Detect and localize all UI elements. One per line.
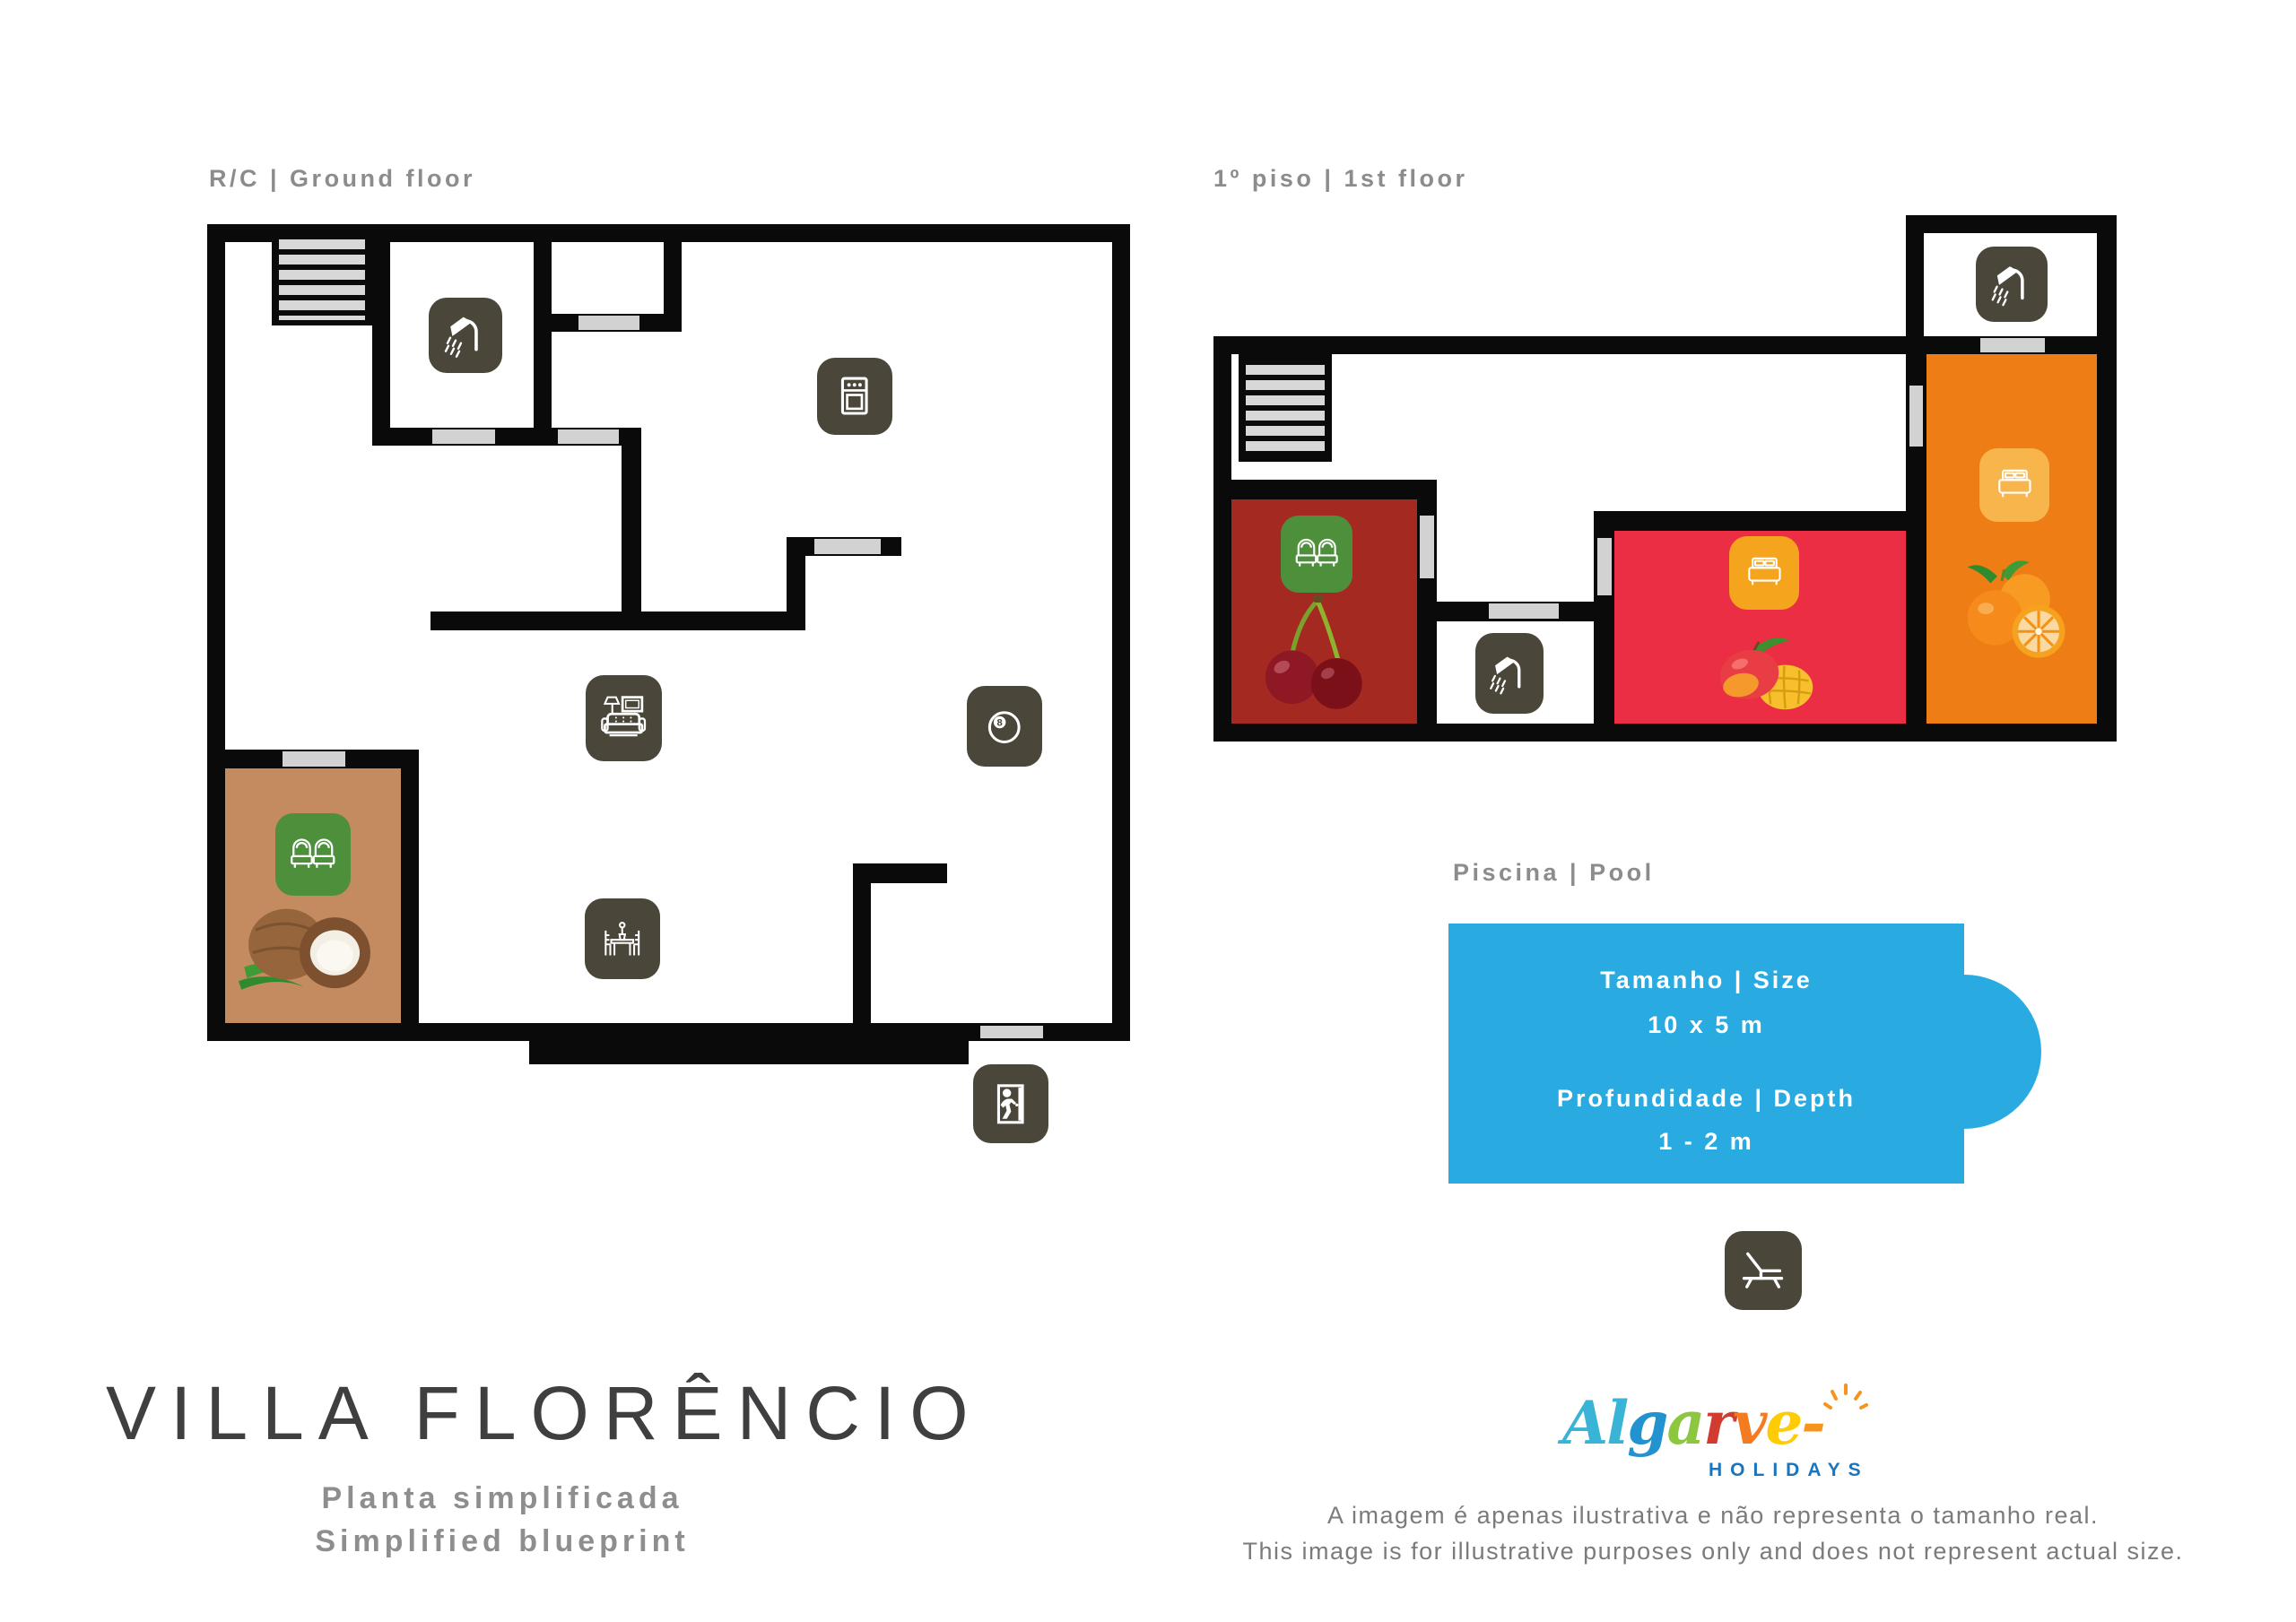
sun-icon <box>1823 1381 1868 1417</box>
first-floor-label: 1º piso | 1st floor <box>1213 165 1467 193</box>
door-opening <box>980 1026 1043 1038</box>
wall <box>207 224 225 1041</box>
wall <box>1213 724 2117 742</box>
cherries-image <box>1254 585 1381 714</box>
wall <box>372 224 390 446</box>
logo-letter: g <box>1627 1388 1666 1458</box>
wall <box>401 750 419 1041</box>
wall <box>1906 215 2117 233</box>
wall <box>853 863 947 883</box>
pool-size-label: Tamanho | Size <box>1448 967 1964 994</box>
wall <box>2097 215 2117 742</box>
stairs-treads <box>279 239 365 320</box>
pool-depth-label: Profundidade | Depth <box>1448 1085 1964 1113</box>
mango-image <box>1711 619 1817 716</box>
shower-icon <box>1475 633 1544 714</box>
double-bed-icon <box>1979 448 2049 522</box>
logo-letter: - <box>1801 1388 1823 1458</box>
wall <box>1213 480 1437 499</box>
oranges-image <box>1961 552 2075 664</box>
door-opening <box>283 751 345 767</box>
logo-letter: v <box>1733 1388 1765 1458</box>
stairs <box>272 224 372 325</box>
room-orange-bedroom <box>1926 354 2097 724</box>
stairs <box>1239 354 1332 462</box>
wall <box>1213 336 1231 742</box>
logo-letter: A <box>1562 1388 1606 1458</box>
pool-label: Piscina | Pool <box>1453 859 1655 887</box>
wall <box>622 428 641 630</box>
exit-icon <box>973 1064 1048 1143</box>
ground-floor-label: R/C | Ground floor <box>209 165 475 193</box>
door-opening <box>1909 386 1923 447</box>
logo-letter: l <box>1606 1388 1627 1458</box>
wall <box>534 224 552 446</box>
twin-beds-icon <box>1281 516 1352 593</box>
wall <box>1594 511 1924 531</box>
door-opening <box>1980 338 2045 352</box>
logo-letter: a <box>1666 1388 1703 1458</box>
dining-table-icon <box>585 898 660 979</box>
door-opening <box>814 539 881 554</box>
logo-letter: e <box>1765 1388 1801 1458</box>
pool-depth-value: 1 - 2 m <box>1448 1128 1964 1156</box>
sofa-tv-icon <box>586 675 662 761</box>
wall <box>1112 224 1130 1041</box>
shower-icon <box>429 298 502 373</box>
page-title: VILLA FLORÊNCIO <box>106 1370 983 1457</box>
door-opening <box>1597 538 1612 595</box>
coconut-image <box>239 884 380 999</box>
door-opening <box>1489 603 1559 619</box>
wall <box>529 1041 969 1064</box>
wall <box>430 612 805 630</box>
subtitle-pt: Planta simplificada <box>135 1481 870 1516</box>
door-opening <box>558 429 619 444</box>
subtitle-en: Simplified blueprint <box>135 1524 870 1559</box>
blueprint-page: 8 <box>0 0 2296 1622</box>
disclaimer-en: This image is for illustrative purposes … <box>1166 1538 2260 1566</box>
algarve-logo: A l g a r v e - <box>1562 1388 1824 1458</box>
billiards-icon <box>967 686 1042 767</box>
door-opening <box>578 316 639 330</box>
shower-icon <box>1976 247 2048 322</box>
wall <box>853 863 871 1023</box>
pool-size-value: 10 x 5 m <box>1448 1011 1964 1039</box>
disclaimer-pt: A imagem é apenas ilustrativa e não repr… <box>1166 1502 2260 1530</box>
oven-icon <box>817 358 892 435</box>
door-opening <box>1420 516 1434 578</box>
logo-letter: r <box>1703 1388 1733 1458</box>
stairs-treads <box>1246 365 1325 456</box>
logo-holidays-text: HOLIDAYS <box>1709 1460 1869 1481</box>
wall <box>1906 215 1924 336</box>
double-bed-icon <box>1729 536 1799 610</box>
wall <box>664 224 682 332</box>
sun-lounger-icon <box>1725 1231 1802 1310</box>
door-opening <box>432 429 495 444</box>
